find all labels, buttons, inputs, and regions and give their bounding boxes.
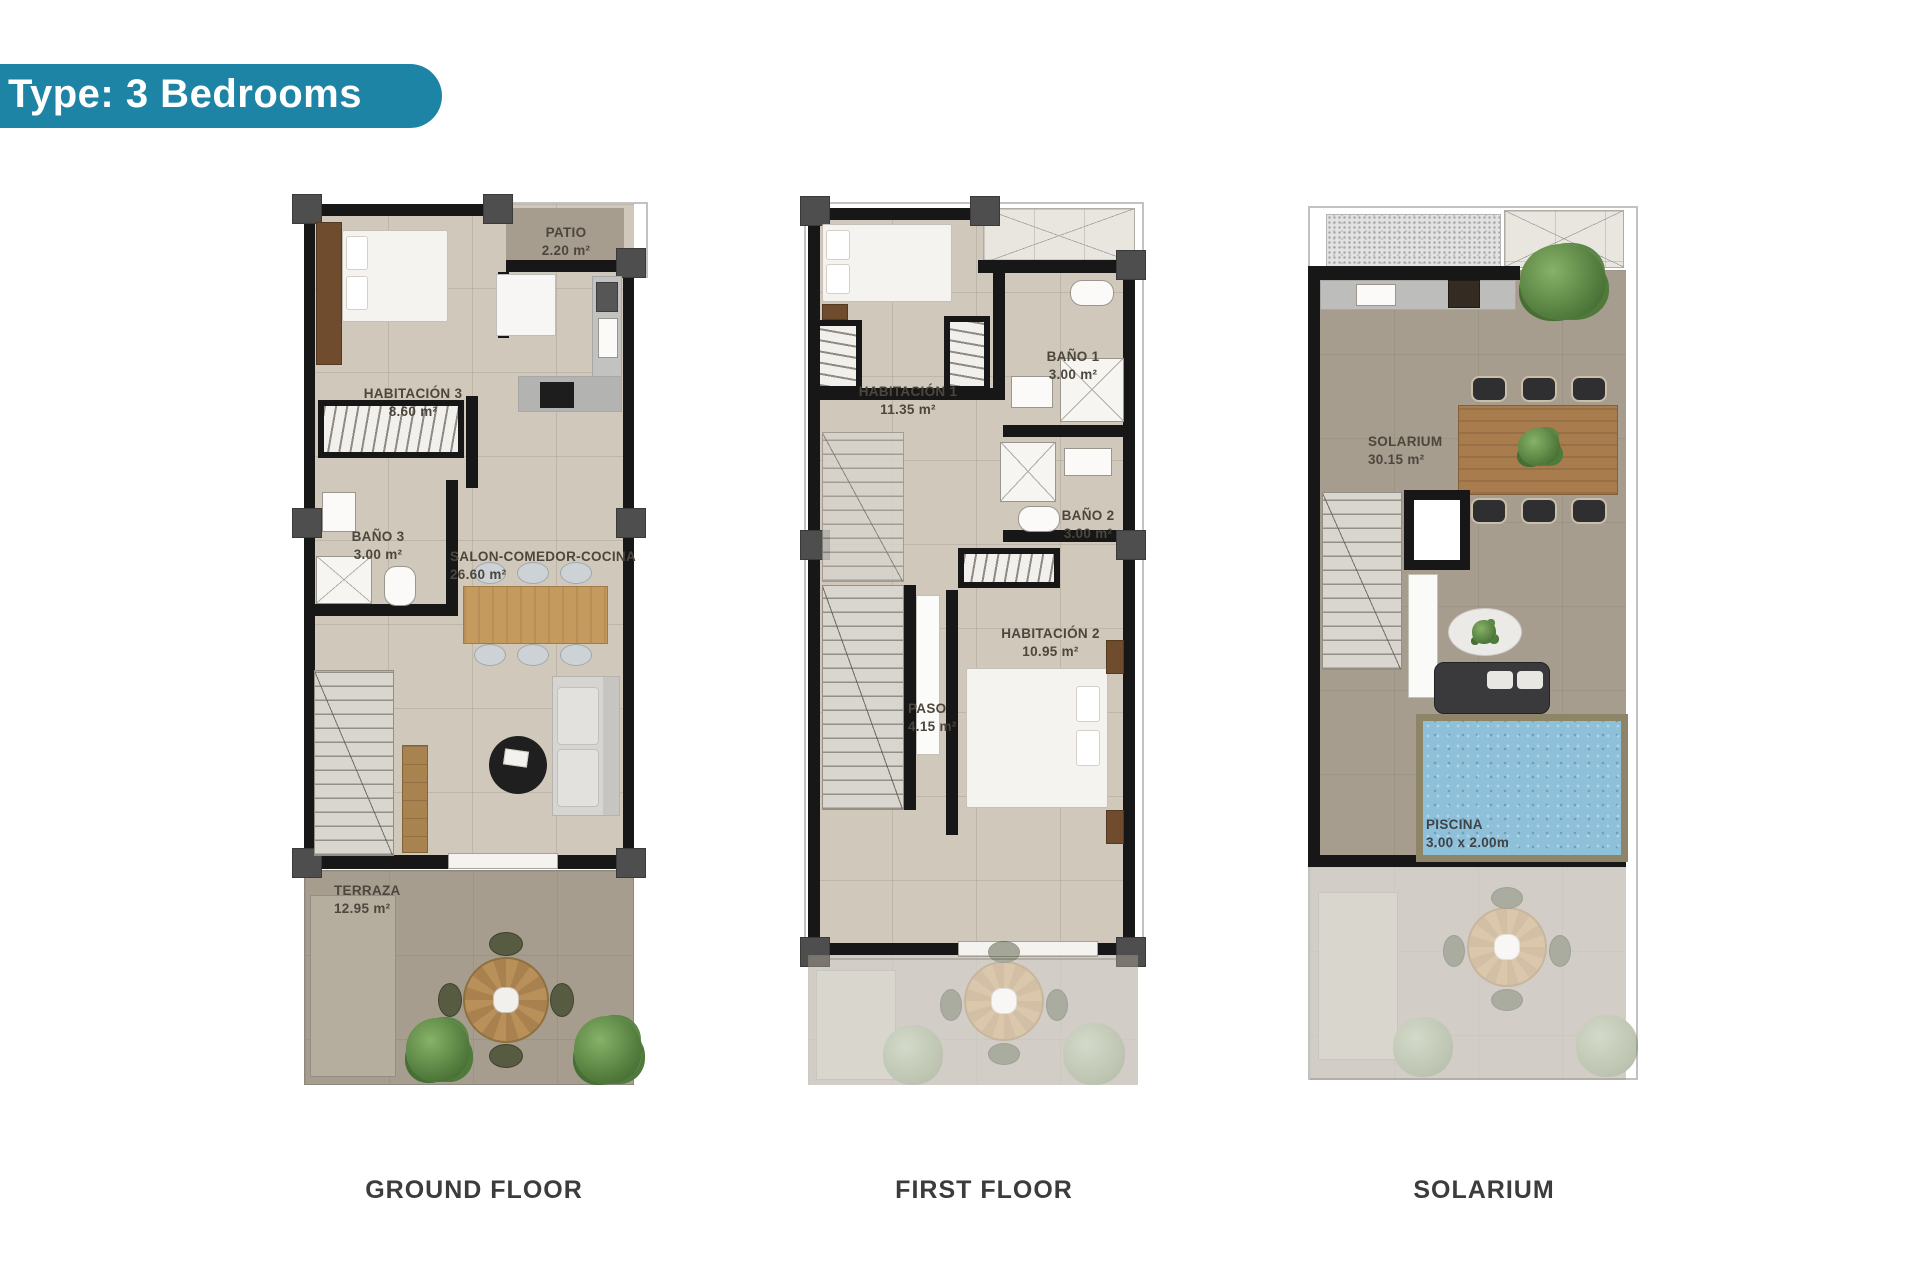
- kitchen-sink: [598, 318, 618, 358]
- outdoor-sofa: [1434, 662, 1550, 714]
- outdoor-sink: [1356, 284, 1396, 306]
- plant: [1063, 1023, 1125, 1085]
- chair: [560, 644, 592, 666]
- terrace-chair: [1443, 935, 1465, 967]
- nightstand: [822, 304, 848, 320]
- room-name: TERRAZA: [334, 882, 494, 900]
- terrace-chair: [489, 932, 523, 956]
- plant: [406, 1018, 470, 1082]
- room-label-terraza: TERRAZA12.95 m²: [334, 882, 494, 918]
- staircase: [314, 670, 394, 856]
- caption-ground-floor: GROUND FLOOR: [298, 1176, 650, 1205]
- terrace-table-center: [991, 988, 1017, 1014]
- terrace-chair: [489, 1044, 523, 1068]
- terrace-chair: [1046, 989, 1068, 1021]
- wardrobe: [944, 316, 990, 392]
- terrace-table: [1467, 907, 1547, 987]
- terrace-table: [964, 961, 1044, 1041]
- sideboard: [402, 745, 428, 853]
- stair-void: [1404, 490, 1470, 570]
- wall: [904, 585, 916, 810]
- sink: [1064, 448, 1112, 476]
- chair: [1471, 376, 1507, 402]
- sofa-cushion: [557, 687, 599, 745]
- terrace-chair: [988, 941, 1020, 963]
- rug-plant: [1472, 620, 1496, 644]
- plant: [1520, 244, 1606, 320]
- room-name: HABITACIÓN 2: [973, 625, 1128, 643]
- type-badge: Type: 3 Bedrooms: [0, 64, 442, 128]
- pillow: [346, 236, 368, 270]
- sofa-cushion: [1517, 671, 1543, 689]
- first-floor-plan: HABITACIÓN 111.35 m² BAÑO 13.00 m² BAÑO …: [808, 200, 1160, 1088]
- room-label-bano-2: BAÑO 23.00 m²: [1033, 507, 1143, 543]
- plant: [1576, 1015, 1638, 1077]
- caption-solarium: SOLARIUM: [1308, 1176, 1660, 1205]
- wardrobe: [958, 548, 1060, 588]
- entry-door-area: [496, 274, 556, 336]
- grill: [1448, 280, 1480, 308]
- sofa: [552, 676, 620, 816]
- wall: [506, 260, 628, 272]
- room-area: 26.60 m²: [450, 566, 660, 584]
- wall: [304, 204, 512, 216]
- pillow: [1076, 730, 1100, 766]
- room-area: 3.00 m²: [1033, 525, 1143, 543]
- plant: [1393, 1017, 1453, 1077]
- chair: [1571, 376, 1607, 402]
- room-name: PASO: [908, 700, 998, 718]
- room-area: 2.20 m²: [510, 242, 622, 260]
- room-name: HABITACIÓN 1: [833, 383, 983, 401]
- shower: [1000, 442, 1056, 502]
- pillar: [616, 848, 646, 878]
- ground-floor-plan: PATIO2.20 m² HABITACIÓN 38.60 m² BAÑO 33…: [298, 200, 650, 1088]
- gravel-area: [1326, 214, 1501, 272]
- room-area: 3.00 m²: [1013, 366, 1133, 384]
- room-area: 30.15 m²: [1368, 451, 1498, 469]
- sofa-cushion: [1487, 671, 1513, 689]
- room-name: BAÑO 2: [1033, 507, 1143, 525]
- terrace-chair: [1549, 935, 1571, 967]
- solarium-plan: PISCINA3.00 x 2.00m SOLARIUM30.15 m²: [1308, 200, 1660, 1088]
- pillar: [800, 196, 830, 226]
- room-label-habitacion-2: HABITACIÓN 210.95 m²: [973, 625, 1128, 661]
- chair: [1471, 498, 1507, 524]
- terrace-table-center: [493, 987, 519, 1013]
- staircase: [822, 585, 904, 810]
- terrace-staircase: [1318, 892, 1398, 1060]
- terrace-chair: [1491, 887, 1523, 909]
- wall: [1003, 425, 1135, 437]
- room-area: 3.00 x 2.00m: [1426, 834, 1596, 852]
- room-label-patio: PATIO2.20 m²: [510, 224, 622, 260]
- room-label-habitacion-1: HABITACIÓN 111.35 m²: [833, 383, 983, 419]
- caption-first-floor: FIRST FLOOR: [808, 1176, 1160, 1205]
- pillar: [292, 508, 322, 538]
- wall: [993, 268, 1005, 400]
- room-label-bano-1: BAÑO 13.00 m²: [1013, 348, 1133, 384]
- table-plant: [1518, 428, 1560, 466]
- patio-void-tiles: [983, 208, 1135, 264]
- outdoor-counter: [1320, 280, 1516, 310]
- wall: [1308, 266, 1320, 867]
- wall: [808, 208, 990, 220]
- room-name: SOLARIUM: [1368, 433, 1498, 451]
- room-label-paso: PASO4.15 m²: [908, 700, 998, 736]
- room-label-piscina: PISCINA3.00 x 2.00m: [1426, 816, 1596, 852]
- wardrobe: [814, 320, 862, 392]
- nightstand: [1106, 810, 1124, 844]
- chair: [1521, 376, 1557, 402]
- floor-plan-sheet: Type: 3 Bedrooms: [0, 0, 1920, 1280]
- room-label-habitacion-3: HABITACIÓN 38.60 m²: [338, 385, 488, 421]
- wall: [304, 604, 458, 616]
- cooktop: [540, 382, 574, 408]
- toilet: [384, 566, 416, 606]
- room-area: 3.00 m²: [323, 546, 433, 564]
- terrace-chair: [1491, 989, 1523, 1011]
- dining-table: [463, 586, 608, 644]
- plant: [883, 1025, 943, 1085]
- staircase: [1322, 492, 1402, 670]
- pillar: [292, 194, 322, 224]
- pillow: [1076, 686, 1100, 722]
- room-area: 4.15 m²: [908, 718, 998, 736]
- staircase-upper: [822, 432, 904, 582]
- pillar: [970, 196, 1000, 226]
- wall: [1308, 266, 1520, 280]
- roof-terrace-ghost: [1308, 867, 1638, 1083]
- pillow: [826, 264, 850, 294]
- room-name: BAÑO 1: [1013, 348, 1133, 366]
- room-name: PISCINA: [1426, 816, 1596, 834]
- chair: [1521, 498, 1557, 524]
- chair: [474, 644, 506, 666]
- pillar: [616, 508, 646, 538]
- chair: [1571, 498, 1607, 524]
- room-area: 10.95 m²: [973, 643, 1128, 661]
- pillar: [1116, 250, 1146, 280]
- terrace-staircase: [310, 895, 396, 1077]
- terrace-table: [463, 957, 549, 1043]
- room-name: PATIO: [510, 224, 622, 242]
- sink: [322, 492, 356, 532]
- kitchen-appliance: [596, 282, 618, 312]
- room-label-salon: SALON-COMEDOR-COCINA26.60 m²: [450, 548, 660, 584]
- room-name: HABITACIÓN 3: [338, 385, 488, 403]
- sofa-cushion: [557, 749, 599, 807]
- plant: [574, 1016, 642, 1084]
- room-label-solarium: SOLARIUM30.15 m²: [1368, 433, 1498, 469]
- terrace-chair: [438, 983, 462, 1017]
- room-area: 11.35 m²: [833, 401, 983, 419]
- pillar: [483, 194, 513, 224]
- chair: [517, 644, 549, 666]
- terrace-chair: [550, 983, 574, 1017]
- room-area: 8.60 m²: [338, 403, 488, 421]
- toilet: [1070, 280, 1114, 306]
- terrace-door: [448, 853, 558, 869]
- room-name: SALON-COMEDOR-COCINA: [450, 548, 660, 566]
- terrace-chair: [940, 989, 962, 1021]
- room-name: BAÑO 3: [323, 528, 433, 546]
- coffee-table-decor: [503, 748, 529, 767]
- pillow: [346, 276, 368, 310]
- room-label-bano-3: BAÑO 33.00 m²: [323, 528, 433, 564]
- sofa-back: [603, 677, 619, 815]
- room-area: 12.95 m²: [334, 900, 494, 918]
- terrace-table-center: [1494, 934, 1520, 960]
- roof-terrace-ghost: [808, 955, 1142, 1085]
- terrace-chair: [988, 1043, 1020, 1065]
- pillow: [826, 230, 850, 260]
- headboard-panel: [316, 222, 342, 365]
